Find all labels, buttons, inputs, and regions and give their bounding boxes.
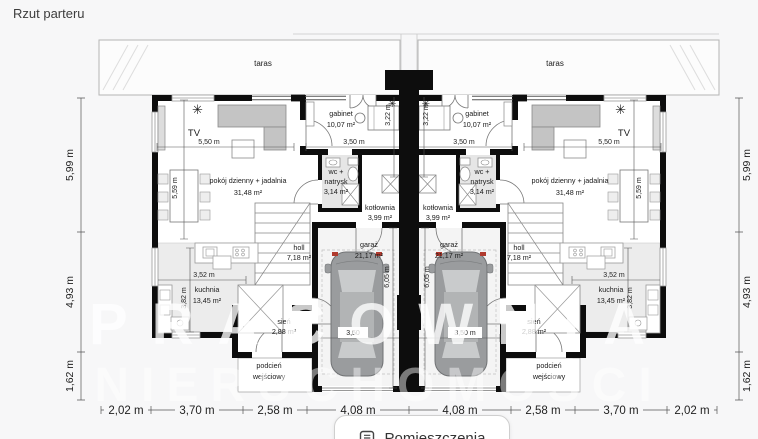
room-label-podcien-1: podcień bbox=[536, 361, 561, 370]
tv-label: TV bbox=[618, 128, 631, 139]
dim-left-0: 5,99 m bbox=[64, 149, 76, 181]
dim-chain-right bbox=[735, 98, 743, 400]
dim-living-width: 5,50 m bbox=[198, 139, 220, 146]
floor-plan-page: Rzut parteru bbox=[0, 0, 758, 439]
room-area-sien: 2,88 m² bbox=[272, 327, 297, 336]
room-area-living: 31,48 m² bbox=[234, 188, 263, 197]
dim-garage-depth: 6,05 m bbox=[384, 266, 391, 288]
dim-bottom-5: 2,58 m bbox=[525, 405, 560, 417]
room-label-podcien-2: wejściowy bbox=[532, 372, 566, 381]
dim-left-2: 1,62 m bbox=[64, 360, 76, 392]
unit-left-geometry bbox=[99, 40, 400, 392]
room-area-gabinet: 10,07 m² bbox=[327, 120, 356, 129]
room-label-podcien-1: podcień bbox=[256, 361, 281, 370]
dim-gabinet-depth: 3,22 m bbox=[385, 104, 392, 126]
room-area-kotlownia: 3,99 m² bbox=[426, 213, 451, 222]
dim-living-depth: 5,59 m bbox=[636, 177, 643, 199]
room-area-garaz: 21,17 m² bbox=[435, 251, 464, 260]
dim-living-width: 5,50 m bbox=[598, 139, 620, 146]
room-area-wc: 3,14 m² bbox=[470, 187, 495, 196]
room-area-kotlownia: 3,99 m² bbox=[368, 213, 393, 222]
room-label-wc-2: natrysk bbox=[470, 177, 494, 186]
room-label-taras: taras bbox=[546, 59, 564, 68]
room-label-sien: sień bbox=[277, 317, 290, 326]
floor-plan: ✳ ✳ bbox=[0, 0, 758, 439]
room-area-sien: 2,88 m² bbox=[522, 327, 547, 336]
rooms-button-label: Pomieszczenia bbox=[385, 430, 486, 439]
dim-bottom-1: 3,70 m bbox=[179, 405, 214, 417]
room-label-living: pokój dzienny + jadalnia bbox=[210, 176, 287, 185]
dim-bottom-6: 3,70 m bbox=[603, 405, 638, 417]
room-area-gabinet: 10,07 m² bbox=[463, 120, 492, 129]
room-label-gabinet: gabinet bbox=[465, 109, 489, 118]
room-label-garaz: garaż bbox=[360, 240, 378, 249]
dim-bottom-0: 2,02 m bbox=[108, 405, 143, 417]
dim-bottom-7: 2,02 m bbox=[674, 405, 709, 417]
dim-right-1: 4,93 m bbox=[741, 276, 753, 308]
room-area-holl: 7,18 m² bbox=[287, 253, 312, 262]
room-label-holl: holl bbox=[293, 243, 305, 252]
dim-living-depth: 5,59 m bbox=[172, 177, 179, 199]
dim-gabinet-width: 3,50 m bbox=[343, 139, 365, 146]
room-area-garaz: 21,17 m² bbox=[355, 251, 384, 260]
room-label-kotlownia: kotłownia bbox=[365, 203, 395, 212]
room-area-kuchnia: 13,45 m² bbox=[597, 296, 626, 305]
room-area-holl: 7,18 m² bbox=[507, 253, 532, 262]
room-label-holl: holl bbox=[513, 243, 525, 252]
room-label-wc-1: wc + bbox=[328, 167, 344, 176]
dim-garage-width: 3,50 m bbox=[454, 330, 476, 337]
room-label-garaz: garaż bbox=[440, 240, 458, 249]
room-area-kuchnia: 13,45 m² bbox=[193, 296, 222, 305]
tv-label: TV bbox=[188, 128, 201, 139]
room-label-wc-1: wc + bbox=[474, 167, 490, 176]
page-title: Rzut parteru bbox=[13, 6, 85, 21]
dim-garage-width: 3,50 bbox=[346, 330, 360, 337]
room-label-kuchnia: kuchnia bbox=[599, 285, 624, 294]
dim-kitchen-width: 3,52 m bbox=[193, 272, 215, 279]
dim-kitchen-depth: 3,82 m bbox=[181, 287, 188, 309]
unit-right-geometry bbox=[418, 40, 719, 392]
room-label-gabinet: gabinet bbox=[329, 109, 353, 118]
dim-right-2: 1,62 m bbox=[741, 360, 753, 392]
list-icon bbox=[359, 430, 375, 439]
dim-garage-depth: 6,05 m bbox=[424, 266, 431, 288]
dim-left-1: 4,93 m bbox=[64, 276, 76, 308]
dim-gabinet-width: 3,50 m bbox=[453, 139, 475, 146]
room-label-kotlownia: kotłownia bbox=[423, 203, 453, 212]
room-label-taras: taras bbox=[254, 59, 272, 68]
dim-bottom-2: 2,58 m bbox=[257, 405, 292, 417]
room-label-living: pokój dzienny + jadalnia bbox=[532, 176, 609, 185]
room-label-kuchnia: kuchnia bbox=[195, 285, 220, 294]
room-label-podcien-2: wejściowy bbox=[252, 372, 286, 381]
room-label-sien: sień bbox=[527, 317, 540, 326]
room-label-wc-2: natrysk bbox=[324, 177, 348, 186]
room-area-wc: 3,14 m² bbox=[324, 187, 349, 196]
room-area-living: 31,48 m² bbox=[556, 188, 585, 197]
dim-chain-left bbox=[77, 98, 85, 400]
rooms-button[interactable]: Pomieszczenia bbox=[334, 415, 510, 439]
dim-gabinet-depth: 3,22 m bbox=[423, 104, 430, 126]
dim-right-0: 5,99 m bbox=[741, 149, 753, 181]
dim-kitchen-width: 3,52 m bbox=[603, 272, 625, 279]
dim-kitchen-depth: 3,82 m bbox=[627, 287, 634, 309]
